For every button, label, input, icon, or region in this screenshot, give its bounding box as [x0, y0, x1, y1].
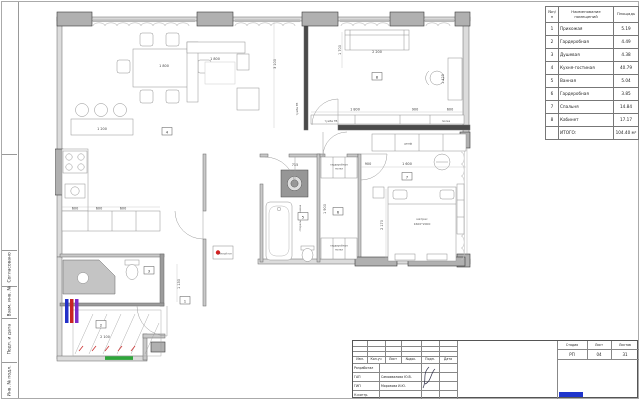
- room-marker-2: 2: [96, 321, 106, 329]
- riser-marker-purple: [75, 299, 79, 323]
- sheets-total: 31: [611, 352, 639, 357]
- margin-label-inv-podl: Инв. № подл.: [8, 367, 13, 397]
- shelf-label: полка: [442, 119, 451, 123]
- table-total-row: ИТОГО:104.40 м²: [546, 127, 639, 140]
- dim: 1 900: [323, 204, 327, 214]
- toilet: [302, 249, 313, 262]
- dim: 1 800: [210, 57, 220, 61]
- signature: [419, 364, 439, 390]
- dim: 1 130: [177, 279, 181, 289]
- tb-line: [557, 349, 639, 350]
- table-row: 5Ванная5.04: [546, 75, 639, 88]
- tb-line: [353, 372, 457, 373]
- name-gip: Морозова И.Ю.: [381, 384, 421, 388]
- dim: 600: [447, 108, 453, 112]
- rev-header-kol: Кол.уч: [367, 357, 385, 361]
- dim: 715: [292, 163, 298, 167]
- office-sofa: [345, 30, 409, 50]
- warm-floor-label: тёплый пол: [218, 253, 232, 256]
- warm-floor-sensor: тёплый пол: [213, 246, 233, 259]
- room-marker-5: 5: [298, 213, 308, 221]
- margin-label-vzam-inv: Взам. инв. №: [8, 287, 13, 317]
- margin-divider: [2, 154, 17, 155]
- table-row: 3Душевая4.38: [546, 49, 639, 62]
- pillow: [440, 190, 454, 199]
- radiator: [457, 184, 464, 234]
- tb-line: [353, 381, 457, 382]
- rev-header-dok: №док.: [401, 357, 421, 361]
- wardrobe-label: гардеробные: [330, 163, 348, 167]
- tv-unit-label: тумба ТВ: [325, 119, 338, 123]
- room-marker-4: 4: [162, 128, 172, 136]
- room-marker-8: 8: [372, 73, 382, 81]
- table-row: 7Спальня14.84: [546, 101, 639, 114]
- room-marker-6: 6: [333, 208, 343, 216]
- shower: [63, 260, 115, 294]
- margin-divider: [2, 318, 17, 319]
- closet-label: шкаф: [404, 142, 413, 146]
- dim: 600: [96, 207, 102, 211]
- room-marker-1: 1: [180, 297, 190, 305]
- mattress-size-label: 1600*2000: [414, 222, 431, 226]
- table-row: 4Кухня-гостиная40.79: [546, 62, 639, 75]
- dim: 2 170: [380, 220, 384, 230]
- mattress-label: матрас: [416, 217, 428, 221]
- dim: 2 100: [100, 335, 110, 339]
- col-header-name: Наименование помещений: [559, 7, 614, 23]
- bar-stool: [95, 104, 108, 117]
- rev-header-data: Дата: [439, 357, 457, 361]
- name-gap: Самохвалова Ю.В.: [381, 375, 421, 379]
- rev-header-izm: Изм.: [353, 357, 367, 361]
- sheet-label: Лист: [587, 343, 611, 347]
- desk: [448, 58, 462, 100]
- dim: 900: [365, 162, 371, 166]
- floor-plan: тёплый пол 1 800 1 800 2 200 1 700: [55, 4, 475, 372]
- total-value: 104.40 м²: [614, 127, 639, 140]
- table-row: 6Гардеробная3.85: [546, 88, 639, 101]
- wardrobe-label: полки: [335, 168, 343, 171]
- tb-line: [353, 390, 457, 391]
- tb-line: [557, 359, 639, 360]
- hall-closet: [73, 310, 161, 356]
- room-markers: 1 2 3 4 5 6 7 8: [96, 73, 412, 329]
- room-schedule-table: №п/п Наименование помещений Площадь 1При…: [545, 6, 638, 140]
- shelf-marks: [79, 346, 135, 351]
- dim: 1 800: [159, 64, 169, 68]
- dim: 1 425: [441, 74, 445, 84]
- dim: 600: [120, 207, 126, 211]
- tb-line: [379, 363, 380, 399]
- studio-logo: [559, 392, 583, 397]
- tb-line: [353, 363, 457, 364]
- dim: 1 800: [350, 108, 360, 112]
- role-razrabotal: Разработал: [354, 366, 379, 370]
- tb-line: [439, 341, 440, 399]
- pillow: [393, 190, 407, 199]
- col-header-area: Площадь: [614, 7, 639, 23]
- nightstand: [373, 187, 384, 198]
- dim: 3 100: [273, 59, 277, 69]
- tb-line: [353, 351, 457, 352]
- hob: [63, 151, 87, 173]
- margin-divider: [2, 250, 17, 251]
- dim: 1 700: [338, 45, 342, 55]
- table-row: 1Прихожая5.19: [546, 23, 639, 36]
- total-label: ИТОГО:: [559, 127, 614, 140]
- margin-divider: [2, 362, 17, 363]
- entry-door-marker: [105, 356, 133, 360]
- bar-stool: [76, 104, 89, 117]
- margin-label-podp-data: Подп. и дата: [8, 325, 13, 355]
- room-marker-3: 3: [144, 267, 154, 275]
- margin-label-soglasovano: Согласовано: [8, 253, 13, 283]
- riser-marker-red: [70, 299, 74, 323]
- stage-value: РП: [557, 352, 587, 357]
- table-row: 2Гардеробная4.49: [546, 36, 639, 49]
- dim: 1 600: [402, 162, 412, 166]
- title-block: Изм. Кол.уч Лист №док. Подп. Дата Разраб…: [352, 340, 638, 398]
- stage-label: Стадия: [557, 343, 587, 347]
- riser-marker-blue: [65, 299, 69, 323]
- room-marker-7: 7: [402, 173, 412, 181]
- tb-line: [457, 341, 458, 399]
- drawing-sheet: Согласовано Взам. инв. № Подп. и дата Ин…: [0, 0, 640, 400]
- coffee-table: [205, 62, 235, 84]
- dim: 2 200: [372, 50, 382, 54]
- toilet: [126, 265, 138, 280]
- rev-header-list: Лист: [385, 357, 401, 361]
- tv-unit-wall-label: тумба ТВ: [295, 102, 299, 115]
- role-gip: ГИП: [354, 384, 379, 388]
- role-nkontr: Н.контр.: [354, 393, 379, 397]
- rev-header-podp: Подп.: [421, 357, 439, 361]
- col-header-num: №п/п: [546, 7, 559, 23]
- dim: 900: [412, 108, 418, 112]
- left-margin-strip: Согласовано Взам. инв. № Подп. и дата Ин…: [2, 2, 19, 398]
- wardrobe-label: гардеробные: [330, 244, 348, 248]
- dim: 1 200: [97, 127, 107, 131]
- wardrobe-label: полки: [335, 249, 343, 252]
- role-gap: ГАП: [354, 375, 379, 379]
- tb-line: [353, 346, 457, 347]
- table-row: 8Кабинет17.17: [546, 114, 639, 127]
- sheets-label: Листов: [611, 343, 639, 347]
- dining-table: [133, 49, 195, 87]
- bar-stool: [114, 104, 127, 117]
- sheet-number: 04: [587, 352, 611, 357]
- dim: 600: [72, 207, 78, 211]
- ottoman: [237, 88, 259, 110]
